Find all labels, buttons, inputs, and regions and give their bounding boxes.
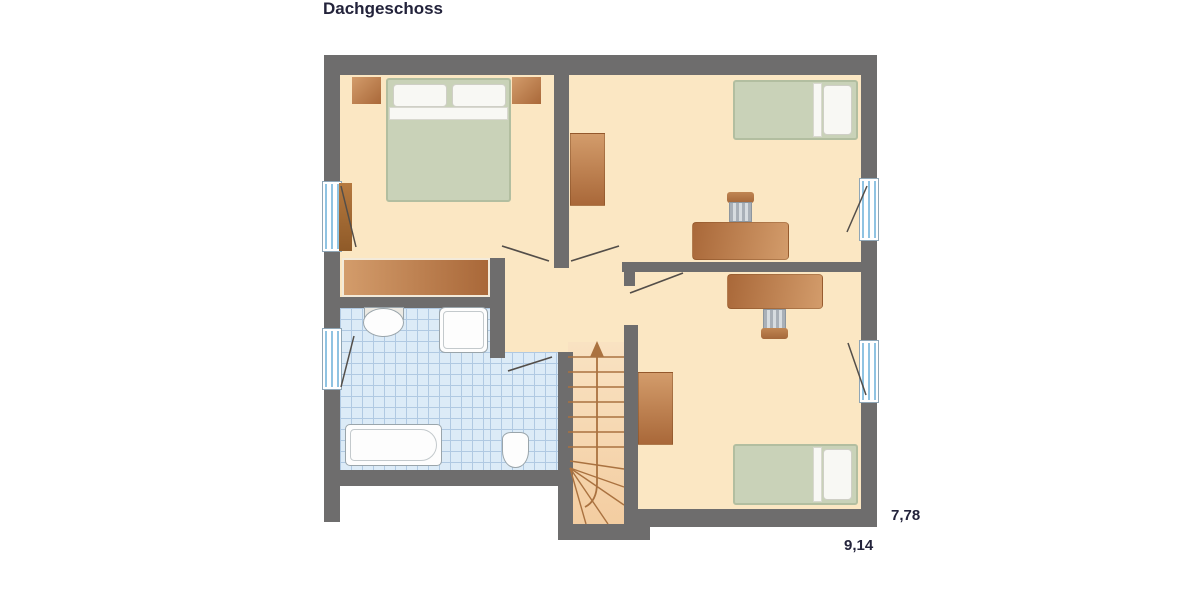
double-bed-pillow-left [393, 84, 447, 107]
wardrobe-top-right [570, 133, 605, 206]
floor-plan-page: Dachgeschoss 7,78 9,14 [0, 0, 1200, 600]
double-bed-pillow-right [452, 84, 506, 107]
sink-bowl [363, 308, 404, 337]
chair-bottom-right-backrest [761, 328, 788, 339]
window-glass [325, 331, 339, 387]
nightstand-left [352, 77, 381, 104]
bathtub [345, 424, 442, 466]
desk-bottom-right [727, 274, 823, 309]
wall-bathroom-bottom [324, 470, 558, 486]
window-glass [862, 181, 876, 238]
toilet [502, 432, 529, 468]
wall-outer-left [324, 55, 340, 522]
floor-plan [0, 0, 1200, 600]
wall-outer-top [324, 55, 877, 75]
chair-bottom-right-seat [763, 309, 786, 329]
window-glass [862, 343, 876, 400]
single-bed-br-sheet [813, 447, 822, 502]
wall-staircase-left [558, 352, 573, 540]
window-sash-open [339, 183, 352, 251]
wall-hallway-connector [490, 258, 505, 358]
shower [439, 307, 488, 353]
wall-outer-right [861, 55, 877, 527]
single-bed-br-pillow [823, 449, 852, 500]
wall-outer-bottom-right [630, 509, 877, 527]
desk-top-right [692, 222, 789, 260]
wall-divider-right-bedrooms [622, 262, 877, 272]
wall-divider-right-bedrooms-stub [624, 272, 635, 286]
wall-staircase-right [624, 325, 638, 527]
nightstand-right [512, 77, 541, 104]
window-bedroom-bottom-right [859, 340, 879, 403]
double-bed-sheet-fold [389, 107, 508, 120]
staircase-floor [568, 342, 624, 524]
shower-tray [443, 311, 484, 349]
window-bedroom-top-right [859, 178, 879, 241]
wardrobe-bottom-right [638, 372, 673, 445]
window-glass [325, 184, 339, 249]
dresser [342, 258, 490, 297]
bathtub-basin [350, 429, 437, 461]
single-bed-tr-pillow [823, 85, 852, 135]
wall-staircase-bottom [558, 524, 650, 540]
wall-divider-top-bedrooms [554, 75, 569, 268]
window-bathroom [322, 328, 342, 390]
chair-top-right-seat [729, 202, 752, 222]
single-bed-tr-sheet [813, 83, 822, 137]
